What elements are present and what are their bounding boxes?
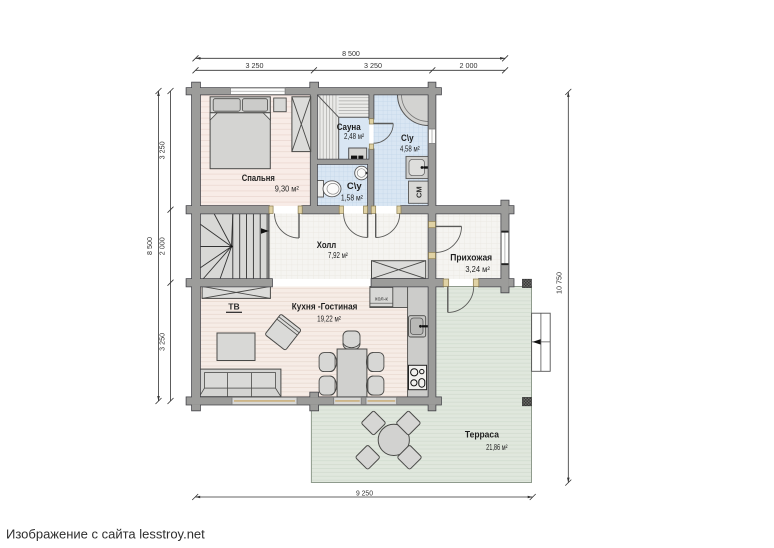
svg-text:19,22 м²: 19,22 м² (317, 314, 341, 323)
svg-text:С\у: С\у (347, 181, 362, 191)
svg-text:Кухня -Гостиная: Кухня -Гостиная (292, 301, 358, 311)
svg-text:Изображение с сайта lesstroy.n: Изображение с сайта lesstroy.net (6, 527, 205, 542)
svg-text:8 500: 8 500 (342, 49, 360, 58)
svg-text:Сауна: Сауна (337, 122, 362, 132)
svg-text:3 250: 3 250 (158, 333, 167, 351)
svg-text:8 500: 8 500 (145, 237, 154, 255)
svg-text:7,92 м²: 7,92 м² (328, 251, 348, 260)
svg-text:2 000: 2 000 (460, 61, 478, 70)
svg-text:10 750: 10 750 (555, 272, 564, 294)
svg-text:9 250: 9 250 (356, 489, 373, 498)
svg-text:хол-к: хол-к (375, 297, 389, 303)
svg-text:3 250: 3 250 (364, 61, 382, 70)
svg-text:ТВ: ТВ (228, 302, 240, 312)
svg-text:2 000: 2 000 (158, 237, 167, 255)
svg-text:Спальня: Спальня (242, 173, 275, 183)
svg-text:4,58 м²: 4,58 м² (400, 145, 420, 154)
svg-text:9,30 м²: 9,30 м² (275, 185, 299, 194)
svg-text:21,86 м²: 21,86 м² (486, 443, 508, 452)
svg-text:Прихожая: Прихожая (450, 252, 492, 262)
svg-text:СМ: СМ (415, 186, 424, 198)
svg-text:Холл: Холл (317, 240, 337, 250)
svg-text:3 250: 3 250 (246, 61, 264, 70)
svg-text:3,24 м²: 3,24 м² (465, 265, 490, 274)
svg-text:Терраса: Терраса (465, 430, 500, 440)
svg-text:2,48 м²: 2,48 м² (344, 132, 364, 141)
svg-text:1,58 м²: 1,58 м² (341, 193, 363, 202)
svg-text:3 250: 3 250 (158, 141, 167, 159)
svg-text:С\у: С\у (401, 133, 414, 143)
